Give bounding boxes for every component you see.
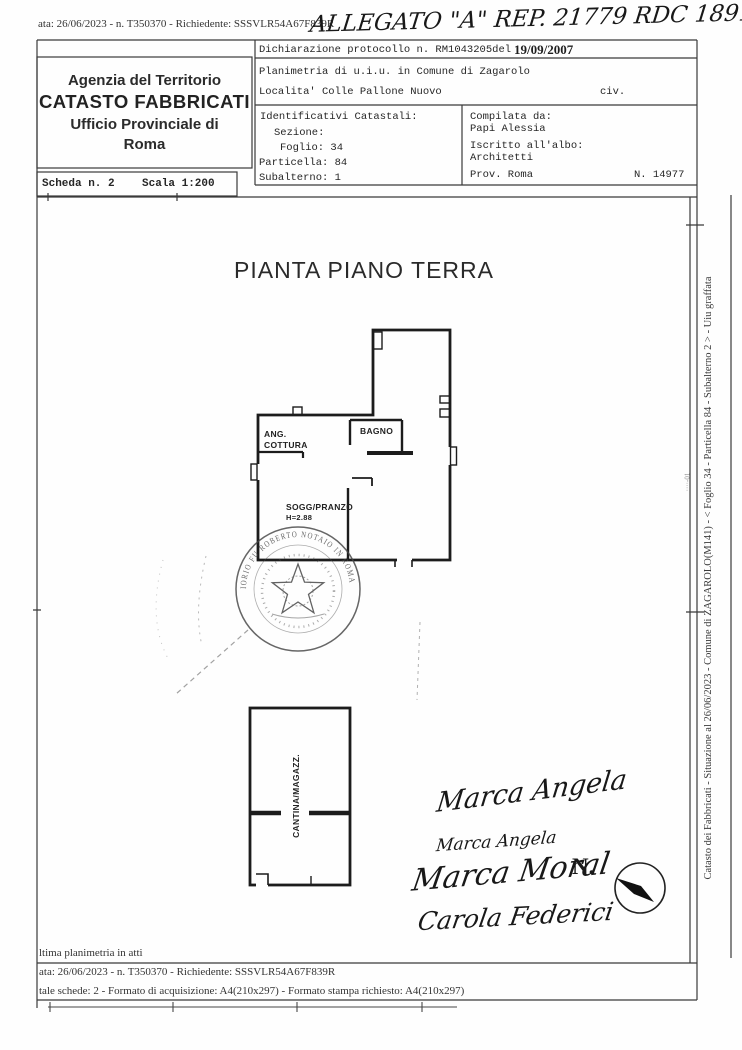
cottura-divider-wall bbox=[258, 452, 303, 458]
room-label-cottura-1: ANG. bbox=[264, 430, 286, 439]
right-wall-notch-2 bbox=[440, 409, 450, 417]
stamp-star-emblem bbox=[272, 564, 323, 613]
localita-line: Localita' Colle Pallone Nuovo bbox=[259, 87, 442, 98]
stamp-outer-ring bbox=[236, 527, 360, 651]
top-meta-line: ata: 26/06/2023 - n. T350370 - Richieden… bbox=[38, 19, 334, 30]
declaration-date: 19/09/2007 bbox=[514, 43, 573, 56]
registration-ticks bbox=[33, 193, 704, 612]
north-needle-icon bbox=[616, 878, 654, 902]
frame-lines bbox=[33, 40, 731, 1008]
compilata-name: Papi Alessia bbox=[470, 124, 546, 135]
room-label-cottura-2: COTTURA bbox=[264, 441, 308, 450]
albo-number: N. 14977 bbox=[634, 170, 684, 181]
scanned-cadastral-document: IORIO FU ROBERTO NOTAIO IN ROMA ata: 26/… bbox=[0, 0, 742, 1050]
dashed-vertical bbox=[417, 622, 420, 700]
room-label-cantina: CANTINA/MAGAZZ. bbox=[292, 754, 301, 838]
cantina-door-gap bbox=[256, 879, 268, 891]
compilata-label: Compilata da: bbox=[470, 112, 552, 123]
albo-label: Iscritto all'albo: bbox=[470, 141, 583, 152]
plan-title: PIANTA PIANO TERRA bbox=[234, 259, 494, 282]
dashed-curve-1 bbox=[199, 556, 206, 646]
window-gap-left bbox=[253, 464, 263, 480]
room-label-soggiorno: SOGG/PRANZO bbox=[286, 503, 353, 512]
room-label-height: H=2.88 bbox=[286, 514, 312, 522]
pencil-marks bbox=[156, 556, 420, 700]
civico-label: civ. bbox=[600, 87, 625, 98]
north-label: N. bbox=[572, 855, 594, 878]
sezione-field: Sezione: bbox=[274, 128, 324, 139]
agency-line1: Agenzia del Territorio bbox=[68, 73, 221, 88]
side-rotated-caption: Catasto dei Fabbricati - Situazione al 2… bbox=[704, 276, 715, 879]
provincia-field: Prov. Roma bbox=[470, 170, 533, 181]
declaration-label: Dichiarazione protocollo n. RM1043205del bbox=[259, 45, 511, 56]
bottom-scale-ruler bbox=[48, 1002, 457, 1012]
door-jamb-stub bbox=[352, 478, 372, 486]
planimetria-line: Planimetria di u.i.u. in Comune di Zagar… bbox=[259, 67, 530, 78]
stamp-scroll bbox=[272, 614, 324, 618]
notary-stamp: IORIO FU ROBERTO NOTAIO IN ROMA bbox=[236, 527, 360, 651]
albo-value: Architetti bbox=[470, 153, 533, 164]
agency-line3: Ufficio Provinciale di bbox=[70, 117, 218, 132]
foglio-field: Foglio: 34 bbox=[280, 143, 343, 154]
agency-line4: Roma bbox=[124, 137, 166, 152]
room-label-bagno: BAGNO bbox=[360, 427, 393, 436]
identificativi-title: Identificativi Catastali: bbox=[260, 112, 418, 123]
agency-line2: CATASTO FABBRICATI bbox=[39, 93, 250, 112]
dashed-curve-2 bbox=[156, 560, 170, 662]
window-sills bbox=[251, 332, 457, 480]
agency-block: Agenzia del Territorio CATASTO FABBRICAT… bbox=[37, 57, 252, 168]
side-edge-code: ····-01 bbox=[685, 473, 692, 492]
subalterno-field: Subalterno: 1 bbox=[259, 173, 341, 184]
footer-line-2: ata: 26/06/2023 - n. T350370 - Richieden… bbox=[39, 967, 335, 978]
scala-label: Scala 1:200 bbox=[142, 179, 215, 190]
footer-line-1: ltima planimetria in atti bbox=[39, 948, 143, 959]
scheda-label: Scheda n. 2 bbox=[42, 179, 115, 190]
particella-field: Particella: 84 bbox=[259, 158, 347, 169]
stamp-inner-ring bbox=[254, 545, 342, 633]
right-wall-notch-1 bbox=[440, 396, 450, 403]
door-gap-bottom bbox=[397, 555, 412, 565]
dashed-diagonal bbox=[176, 630, 248, 694]
footer-line-3: tale schede: 2 - Formato di acquisizione… bbox=[39, 986, 464, 997]
north-arrow bbox=[615, 863, 665, 913]
